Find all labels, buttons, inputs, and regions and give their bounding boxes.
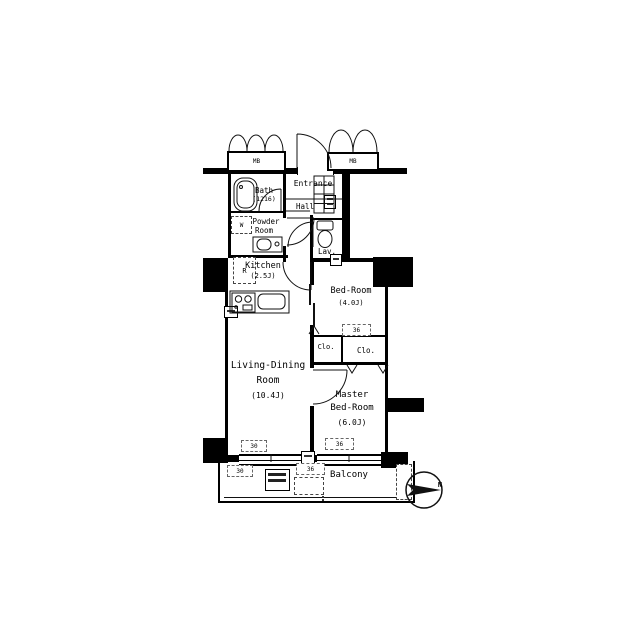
- toilet-icon: [317, 221, 333, 248]
- bath-area: (1216): [252, 196, 275, 203]
- vanity-sink-icon: [253, 237, 282, 252]
- bath-name: Bath: [255, 187, 273, 195]
- compass-north-label: N: [438, 482, 442, 489]
- mb-left-door-arcs-icon: [229, 135, 283, 151]
- bedroom-name: Bed-Room: [331, 287, 372, 296]
- powder-room-name-2: Room: [255, 227, 273, 235]
- kitchen-counter-icon: [230, 291, 289, 313]
- mb-right-door-arcs-icon: [329, 130, 377, 152]
- living-dining-name-1: Living-Dining: [231, 361, 305, 371]
- closet-left-name: Clo.: [318, 344, 335, 351]
- powder-room-name-1: Powder: [252, 218, 279, 226]
- front-door-arc-icon: [297, 134, 331, 168]
- kitchen-name: Kitchen: [245, 262, 281, 271]
- window-stile-marks: [271, 454, 349, 462]
- entrance-name: Entrance: [294, 180, 333, 188]
- lavatory-name: Lav.: [318, 248, 336, 256]
- kitchen-area: (2.5J): [250, 273, 275, 280]
- floorplan-page: MB MB W R 36 30 36 30 36: [0, 0, 640, 640]
- floorplan-linework: [0, 0, 640, 640]
- closet-right-name: Clo.: [357, 347, 375, 355]
- hall-name: Hall: [296, 203, 314, 211]
- balcony-name: Balcony: [330, 471, 368, 480]
- living-dining-area: (10.4J): [251, 392, 285, 400]
- master-bedroom-name-2: Bed-Room: [330, 404, 373, 413]
- bedroom-area: (4.0J): [338, 300, 363, 307]
- living-dining-name-2: Room: [257, 376, 280, 386]
- master-bedroom-name-1: Master: [336, 391, 369, 400]
- compass-icon: [406, 472, 442, 508]
- hall-living-door-arc-icon: [283, 262, 311, 290]
- lav-door-arc-icon: [288, 222, 313, 247]
- master-bedroom-area: (6.0J): [338, 419, 367, 427]
